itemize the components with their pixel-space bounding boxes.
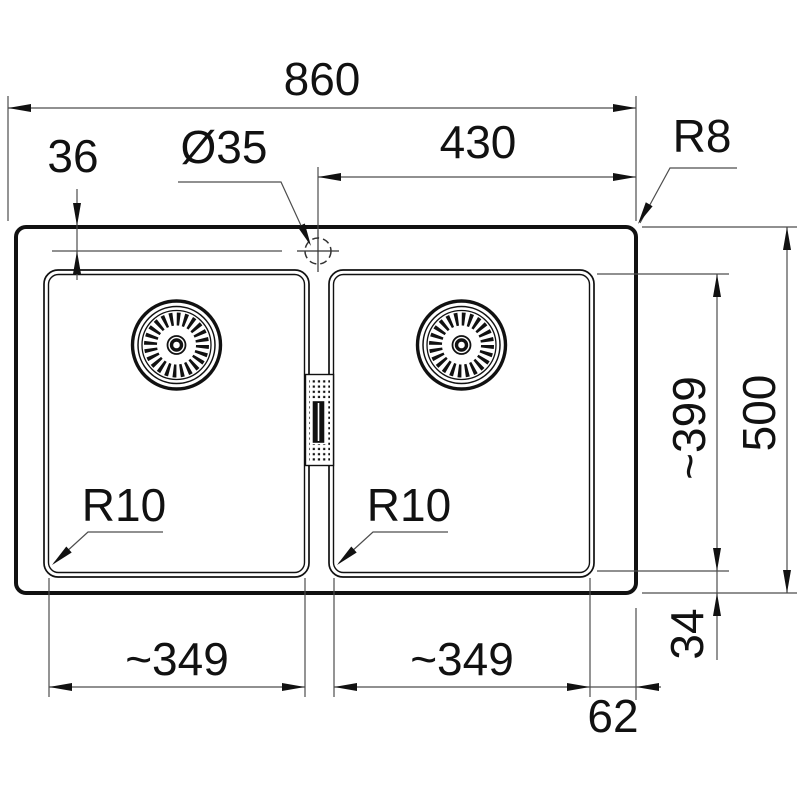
label-bowl-width-left: ~349	[125, 633, 229, 685]
label-tap-diameter: Ø35	[181, 121, 268, 173]
label-tap-offset: 36	[47, 130, 98, 182]
label-bowl-radius-right: R10	[367, 479, 451, 531]
label-bowl-to-bottom-edge: 34	[661, 608, 713, 659]
label-bowl-radius-left: R10	[82, 479, 166, 531]
label-bowl-length: ~399	[663, 376, 715, 480]
center-overflow-divider	[306, 375, 334, 466]
label-bowl-to-side-edge: 62	[587, 690, 638, 742]
label-overall-width: 860	[284, 53, 361, 105]
label-bowl-width-right: ~349	[410, 633, 514, 685]
drawing-canvas: 860 430 R8 36 Ø35 ~399 500 34 R10 R10 ~3…	[0, 0, 800, 800]
label-overall-depth: 500	[733, 375, 785, 452]
sink-technical-drawing: 860 430 R8 36 Ø35 ~399 500 34 R10 R10 ~3…	[0, 0, 800, 800]
label-deck-corner-radius: R8	[673, 110, 732, 162]
label-tap-to-right-edge: 430	[440, 116, 517, 168]
